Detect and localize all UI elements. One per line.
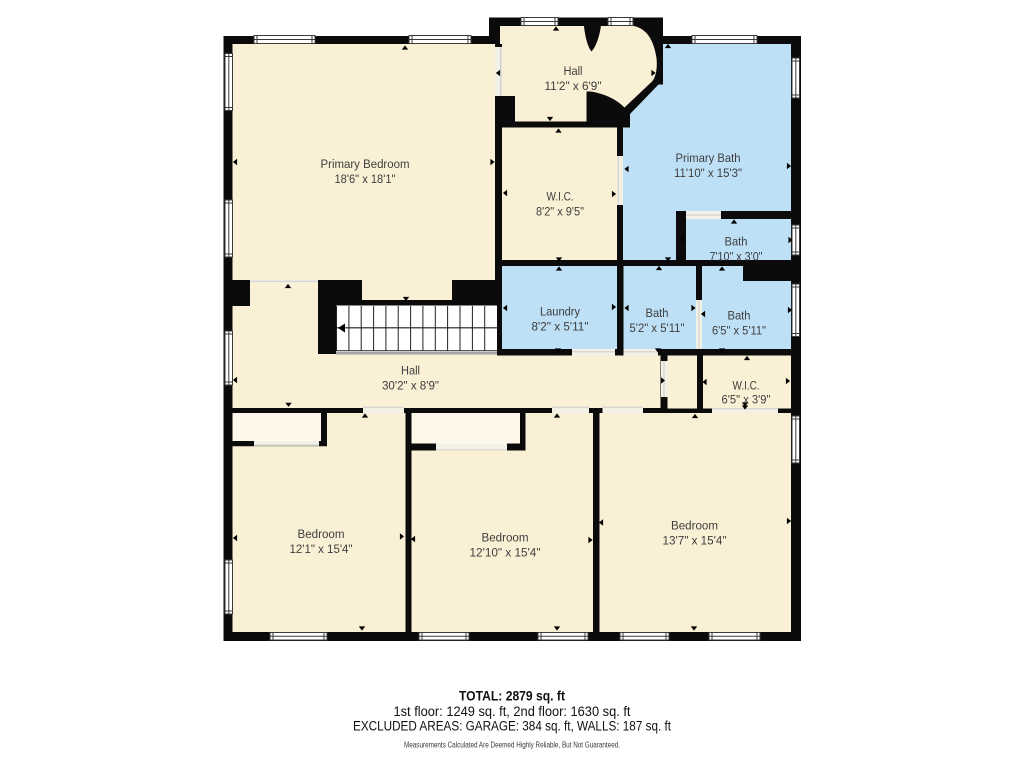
svg-text:Bedroom: Bedroom: [671, 519, 718, 533]
svg-text:Bedroom: Bedroom: [482, 531, 529, 545]
svg-text:5'2" x 5'11": 5'2" x 5'11": [630, 321, 685, 335]
svg-text:W.I.C.: W.I.C.: [547, 190, 574, 204]
svg-text:Primary Bath: Primary Bath: [676, 151, 741, 165]
svg-text:30'2" x 8'9": 30'2" x 8'9": [382, 379, 439, 393]
svg-text:7'10" x 3'0": 7'10" x 3'0": [710, 250, 763, 264]
svg-text:11'2" x 6'9": 11'2" x 6'9": [545, 79, 602, 93]
svg-text:11'10" x 15'3": 11'10" x 15'3": [674, 166, 742, 180]
svg-text:EXCLUDED AREAS: GARAGE: 384 sq: EXCLUDED AREAS: GARAGE: 384 sq. ft, WALL…: [353, 719, 671, 734]
svg-text:Bedroom: Bedroom: [298, 527, 345, 541]
svg-text:Hall: Hall: [401, 364, 420, 378]
svg-text:8'2" x 5'11": 8'2" x 5'11": [532, 320, 589, 334]
svg-text:6'5" x 3'9": 6'5" x 3'9": [722, 393, 771, 407]
svg-text:6'5" x 5'11": 6'5" x 5'11": [712, 324, 766, 338]
svg-text:Primary Bedroom: Primary Bedroom: [321, 157, 410, 171]
svg-text:Laundry: Laundry: [540, 305, 581, 319]
svg-text:18'6" x 18'1": 18'6" x 18'1": [335, 172, 396, 186]
svg-text:Measurements Calculated Are De: Measurements Calculated Are Deemed Highl…: [404, 741, 620, 750]
svg-text:Bath: Bath: [646, 306, 669, 320]
svg-text:12'10" x 15'4": 12'10" x 15'4": [470, 546, 541, 560]
svg-text:W.I.C.: W.I.C.: [733, 379, 760, 393]
svg-text:13'7" x 15'4": 13'7" x 15'4": [663, 534, 727, 548]
svg-text:Bath: Bath: [728, 309, 751, 323]
svg-text:1st floor: 1249 sq. ft, 2nd fl: 1st floor: 1249 sq. ft, 2nd floor: 1630 …: [394, 704, 631, 719]
svg-text:TOTAL: 2879 sq. ft: TOTAL: 2879 sq. ft: [459, 688, 565, 704]
svg-text:Bath: Bath: [725, 235, 748, 249]
svg-text:12'1" x 15'4": 12'1" x 15'4": [290, 542, 353, 556]
svg-text:8'2" x 9'5": 8'2" x 9'5": [536, 205, 584, 219]
svg-text:Hall: Hall: [564, 64, 583, 78]
